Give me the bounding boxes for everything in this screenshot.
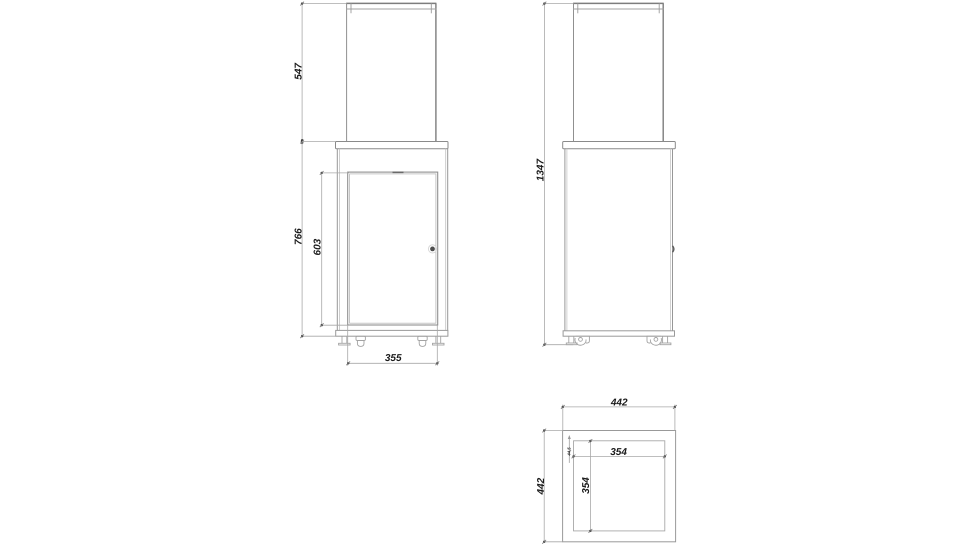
svg-text:354: 354 bbox=[581, 477, 592, 494]
svg-text:766: 766 bbox=[293, 228, 304, 245]
svg-text:354: 354 bbox=[610, 447, 627, 458]
svg-text:355: 355 bbox=[385, 353, 402, 364]
svg-text:442: 442 bbox=[536, 477, 547, 495]
svg-text:44,5: 44,5 bbox=[566, 447, 571, 457]
svg-text:603: 603 bbox=[313, 238, 324, 255]
svg-text:1347: 1347 bbox=[535, 159, 546, 182]
svg-text:442: 442 bbox=[610, 397, 628, 408]
svg-text:547: 547 bbox=[293, 63, 304, 80]
